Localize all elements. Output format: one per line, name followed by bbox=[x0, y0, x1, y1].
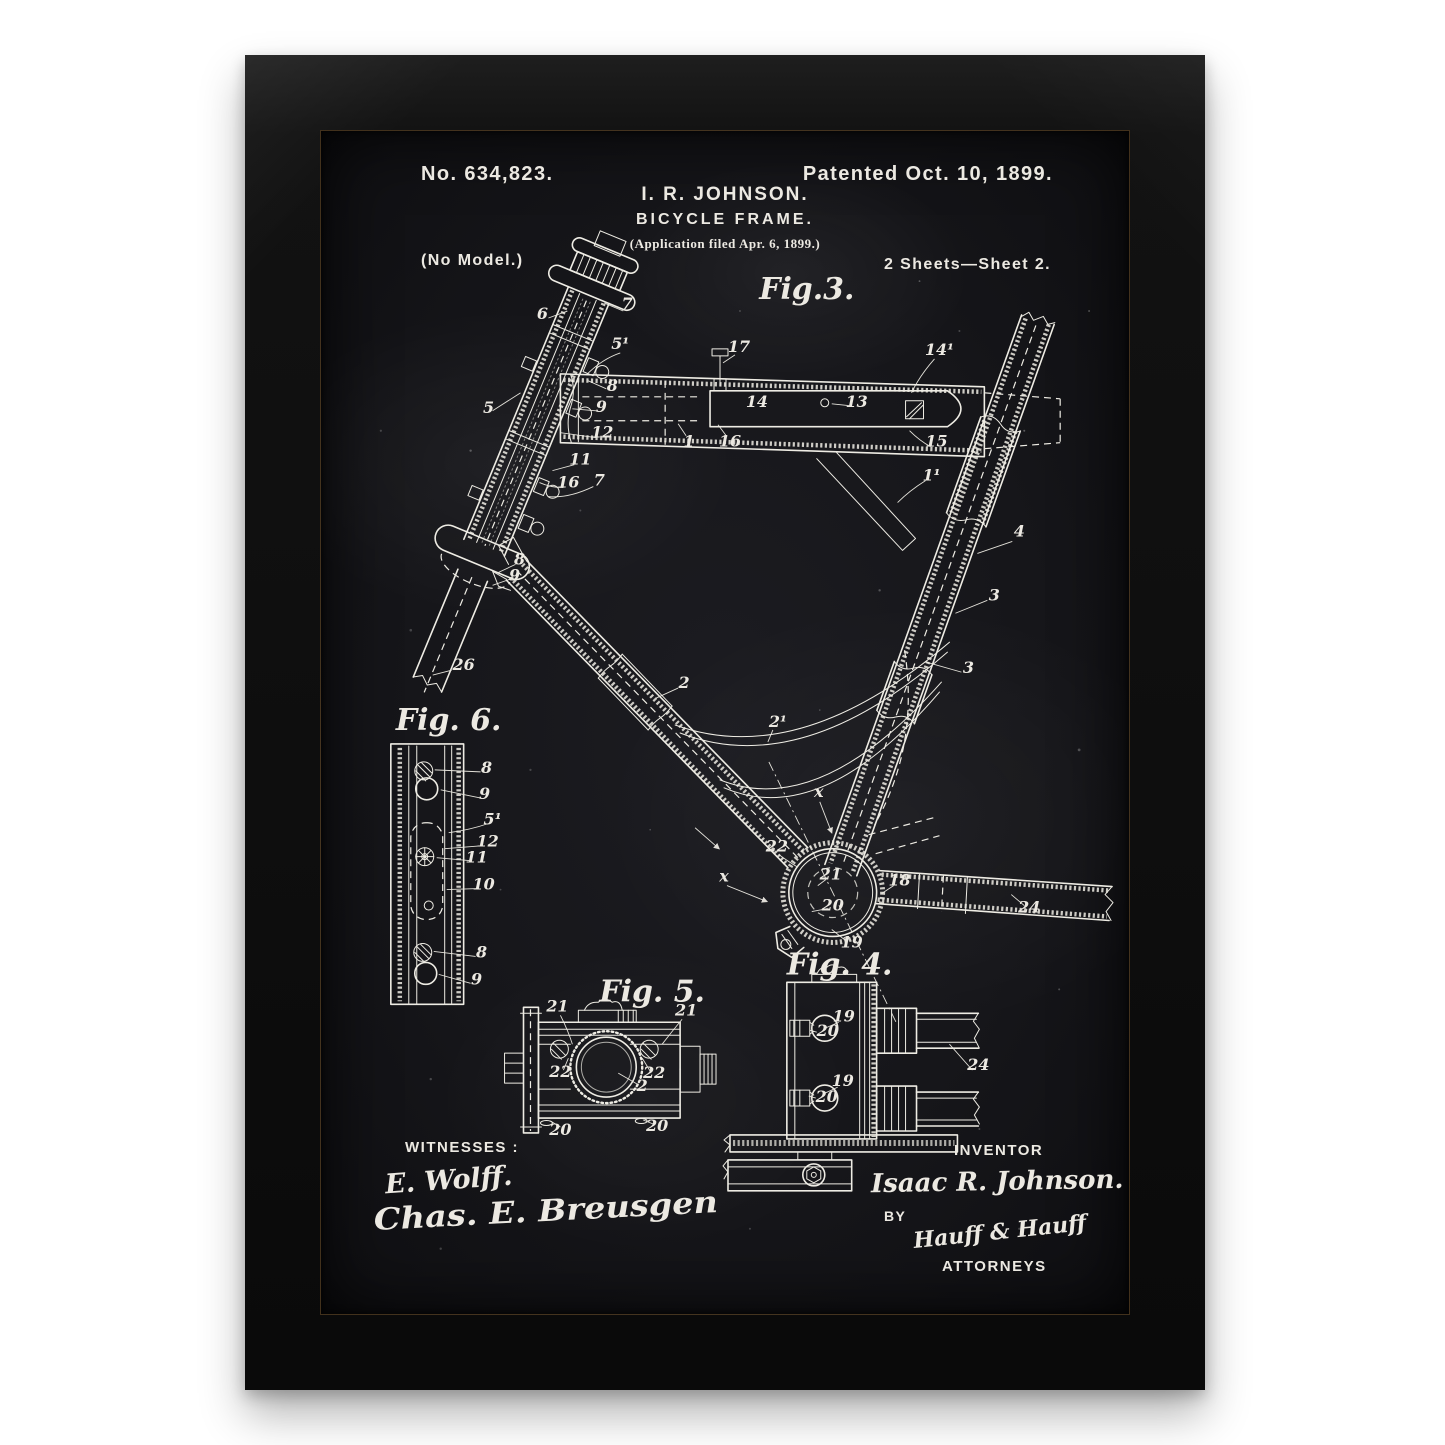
ref-label: 5¹ bbox=[611, 334, 629, 353]
application-line: (Application filed Apr. 6, 1899.) bbox=[321, 236, 1129, 252]
ref-label: 7 bbox=[594, 471, 605, 490]
fig5-shell bbox=[505, 999, 716, 1133]
ref-label: 20 bbox=[821, 896, 844, 915]
ref-label: 8 bbox=[476, 942, 487, 961]
patent-date: Patented Oct. 10, 1899. bbox=[803, 163, 1053, 186]
ref-label: x bbox=[718, 867, 729, 886]
ref-label: 10 bbox=[472, 875, 494, 894]
ref-label: 20 bbox=[815, 1087, 838, 1106]
ref-label: 22 bbox=[765, 837, 788, 856]
ref-label: 26 bbox=[452, 655, 475, 674]
ref-label: 12 bbox=[591, 423, 613, 442]
ref-label: 1 bbox=[684, 432, 695, 451]
ref-label: 8 bbox=[481, 758, 492, 777]
patent-drawing: Fig.3.Fig. 6.Fig. 5.Fig. 4. 7655¹8912111… bbox=[321, 131, 1129, 1314]
ref-label: 24 bbox=[1017, 898, 1040, 917]
fig-title: Fig. 4. bbox=[786, 947, 893, 982]
fig-title: Fig.3. bbox=[758, 272, 854, 307]
ref-label: 2 bbox=[636, 1076, 648, 1095]
ref-label: 20 bbox=[645, 1116, 668, 1135]
ref-label: 3 bbox=[963, 658, 974, 677]
ref-label: 16 bbox=[557, 473, 579, 492]
ref-label: 14 bbox=[746, 392, 768, 411]
ref-label: 18 bbox=[888, 871, 910, 890]
inventor-label: INVENTOR bbox=[954, 1142, 1043, 1159]
ref-label: 24 bbox=[966, 1055, 989, 1074]
ref-label: 2 bbox=[678, 673, 690, 692]
figure-titles: Fig.3.Fig. 6.Fig. 5.Fig. 4. bbox=[395, 272, 893, 1009]
sheet-info: 2 Sheets—Sheet 2. bbox=[884, 256, 1051, 274]
ref-label: 21 bbox=[819, 865, 842, 884]
fig3-bottom-bracket bbox=[695, 762, 1113, 1023]
picture-frame: Fig.3.Fig. 6.Fig. 5.Fig. 4. 7655¹8912111… bbox=[245, 55, 1205, 1390]
ref-label: 14¹ bbox=[925, 340, 954, 359]
ref-label: 5 bbox=[483, 398, 494, 417]
patent-number: No. 634,823. bbox=[421, 163, 553, 186]
ref-label: 22 bbox=[548, 1062, 571, 1081]
ref-label: 19 bbox=[841, 932, 863, 951]
fig3-head-tube bbox=[378, 217, 659, 711]
product-photo: Fig.3.Fig. 6.Fig. 5.Fig. 4. 7655¹8912111… bbox=[0, 0, 1445, 1445]
ref-label: 20 bbox=[548, 1120, 571, 1139]
ref-label: 16 bbox=[719, 432, 741, 451]
ref-label: 1¹ bbox=[922, 466, 940, 485]
ref-label: 21 bbox=[674, 1000, 697, 1019]
fig-title: Fig. 6. bbox=[395, 703, 502, 738]
patent-poster: Fig.3.Fig. 6.Fig. 5.Fig. 4. 7655¹8912111… bbox=[320, 130, 1130, 1315]
ref-label: 17 bbox=[728, 337, 750, 356]
inventor-signature: Isaac R. Johnson. bbox=[871, 1165, 1124, 1199]
no-model-note: (No Model.) bbox=[421, 252, 524, 270]
ref-label: 3 bbox=[989, 585, 1000, 604]
ref-label: 21 bbox=[545, 996, 568, 1015]
fig6-rail bbox=[391, 744, 464, 1004]
ref-label: 11 bbox=[466, 848, 488, 867]
ref-label: 4 bbox=[1014, 521, 1025, 540]
ref-label: 15 bbox=[925, 432, 947, 451]
ref-label: 2¹ bbox=[768, 712, 787, 731]
ref-label: 13 bbox=[846, 392, 868, 411]
reference-numerals: 7655¹8912111678926171411614¹13151¹22¹433… bbox=[452, 294, 1041, 1139]
ref-label: 11 bbox=[569, 450, 591, 469]
fig3-curved-braces bbox=[675, 453, 949, 825]
fig3-top-tube bbox=[560, 349, 1060, 457]
fig3-down-tube bbox=[493, 537, 808, 867]
inventor-name-title: I. R. JOHNSON. bbox=[321, 184, 1129, 206]
patent-title: BICYCLE FRAME. bbox=[321, 211, 1129, 229]
ref-label: 9 bbox=[509, 565, 520, 584]
ref-label: 5¹ bbox=[484, 810, 502, 829]
witnesses-label: WITNESSES : bbox=[405, 1139, 519, 1156]
ref-label: 9 bbox=[479, 784, 490, 803]
by-label: BY bbox=[884, 1208, 906, 1224]
ref-label: 9 bbox=[596, 397, 607, 416]
ref-label: x bbox=[813, 782, 824, 801]
ref-label: 9 bbox=[471, 969, 482, 988]
ref-label: 20 bbox=[816, 1021, 839, 1040]
attorneys-label: ATTORNEYS bbox=[942, 1258, 1047, 1275]
ref-label: 6 bbox=[537, 304, 548, 323]
ref-label: 7 bbox=[622, 294, 633, 313]
ref-label: 8 bbox=[607, 376, 618, 395]
